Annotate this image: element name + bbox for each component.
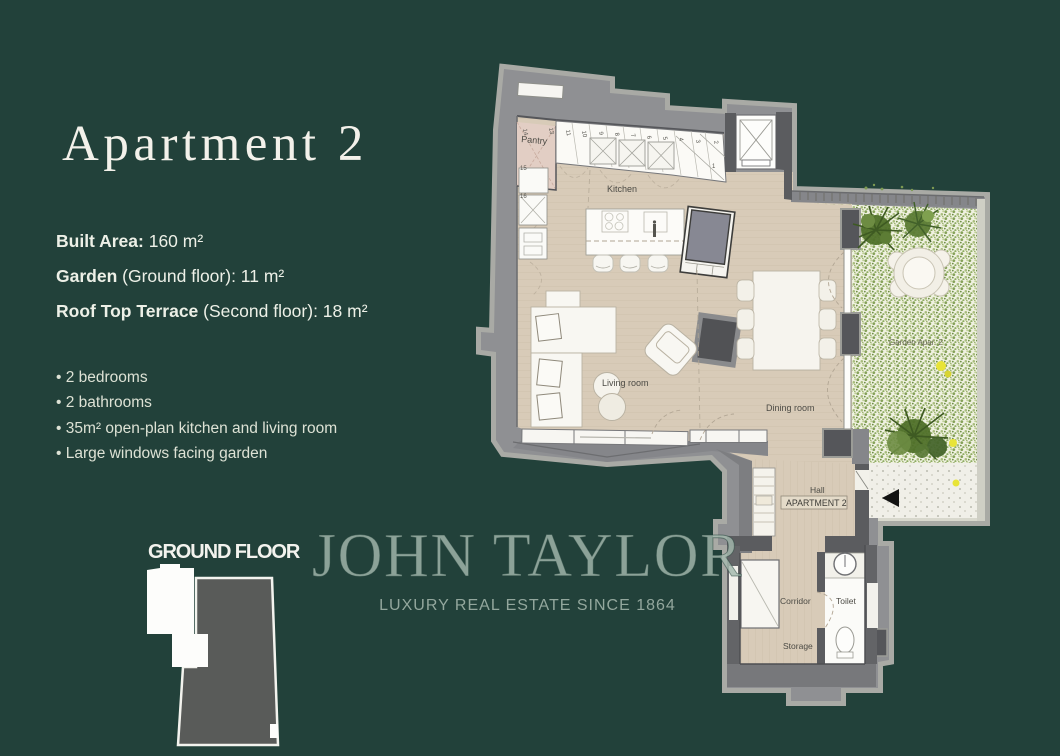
svg-text:Dining room: Dining room — [766, 403, 815, 413]
svg-text:Garden Apar. 2: Garden Apar. 2 — [889, 338, 943, 347]
svg-text:Hall: Hall — [810, 485, 825, 495]
svg-text:Kitchen: Kitchen — [607, 184, 637, 194]
svg-text:APARTMENT 2: APARTMENT 2 — [786, 498, 847, 508]
svg-text:16: 16 — [520, 194, 527, 200]
svg-text:Storage: Storage — [783, 641, 813, 651]
svg-text:15: 15 — [520, 166, 527, 172]
svg-text:Living room: Living room — [602, 378, 649, 388]
